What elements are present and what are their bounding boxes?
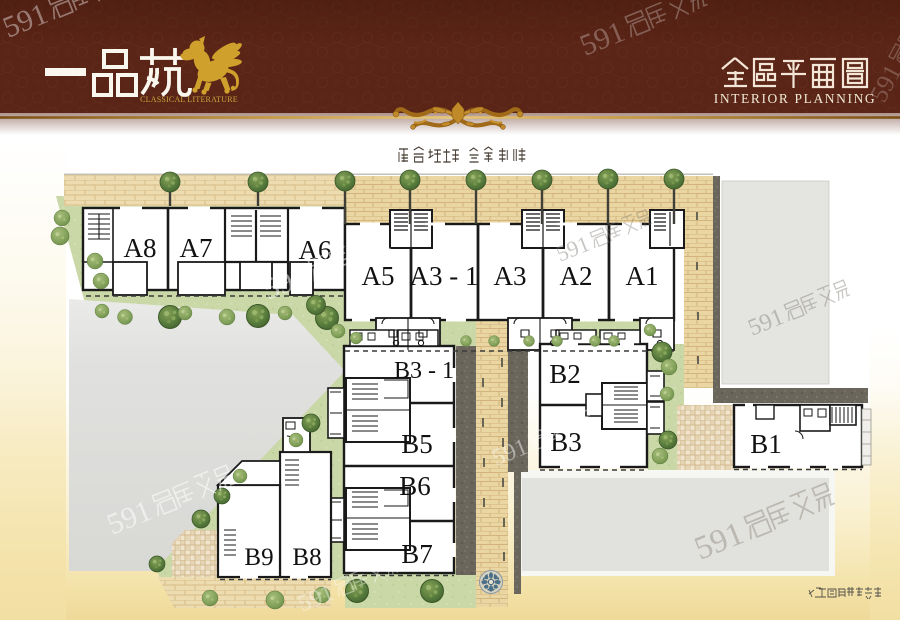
svg-text:B5: B5 <box>401 429 433 459</box>
svg-text:A8: A8 <box>124 233 157 263</box>
svg-text:A3 - 1: A3 - 1 <box>410 261 479 291</box>
svg-text:B1: B1 <box>750 429 782 459</box>
svg-text:B3 - 1: B3 - 1 <box>394 358 454 384</box>
svg-text:CLASSICAL LITERATURE: CLASSICAL LITERATURE <box>140 95 238 104</box>
svg-text:A3: A3 <box>494 261 527 291</box>
svg-text:A5: A5 <box>362 261 395 291</box>
svg-text:B2: B2 <box>549 359 581 389</box>
svg-text:INTERIOR PLANNING: INTERIOR PLANNING <box>714 91 877 106</box>
svg-text:B8: B8 <box>292 544 321 571</box>
svg-text:A1: A1 <box>626 261 659 291</box>
svg-text:A7: A7 <box>180 233 213 263</box>
svg-text:B6: B6 <box>399 471 431 501</box>
svg-text:B9: B9 <box>244 544 273 571</box>
svg-text:B7: B7 <box>401 539 433 569</box>
